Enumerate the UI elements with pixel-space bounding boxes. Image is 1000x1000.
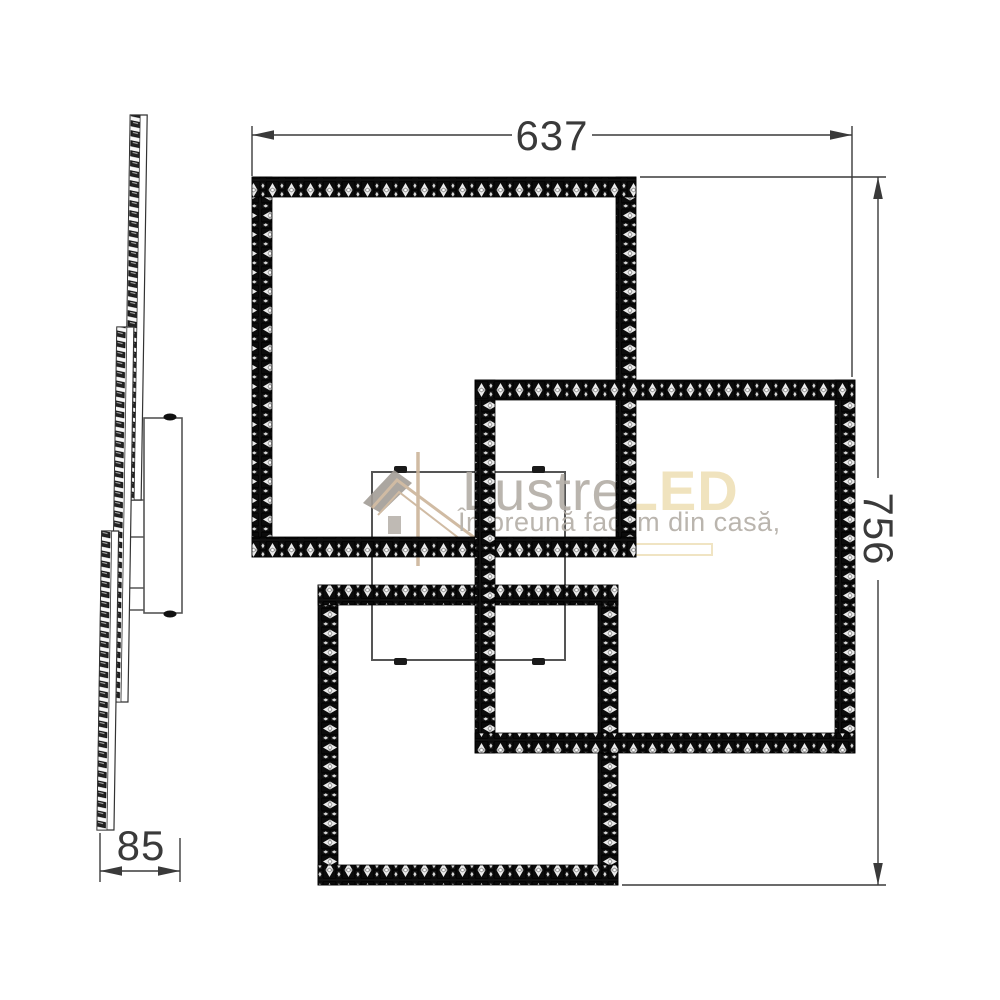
dimension-width-value: 637 xyxy=(515,112,588,159)
arrow-up-icon xyxy=(873,177,883,199)
arrow-right-icon xyxy=(830,130,852,140)
dimension-width: 637 xyxy=(252,112,852,377)
dimension-depth-value: 85 xyxy=(117,822,166,869)
dimension-depth: 85 xyxy=(100,822,180,882)
arrow-left-icon xyxy=(252,130,274,140)
square-frame-right xyxy=(475,380,855,753)
canopy-clip-bottom xyxy=(164,611,177,618)
arrow-down-icon xyxy=(873,863,883,885)
plan-view: LustreLED Împreună facem din casă, xyxy=(252,177,855,885)
dimension-height-value: 756 xyxy=(855,492,902,565)
diagram-canvas: LustreLED Împreună facem din casă, xyxy=(0,0,1000,1000)
lamp-dimension-diagram: LustreLED Împreună facem din casă, xyxy=(0,0,1000,1000)
side-profile-frame3 xyxy=(97,531,119,830)
side-view xyxy=(97,115,182,830)
canopy-clip-top xyxy=(164,414,177,421)
side-profiles xyxy=(97,115,147,830)
watermark-underline xyxy=(627,544,712,555)
